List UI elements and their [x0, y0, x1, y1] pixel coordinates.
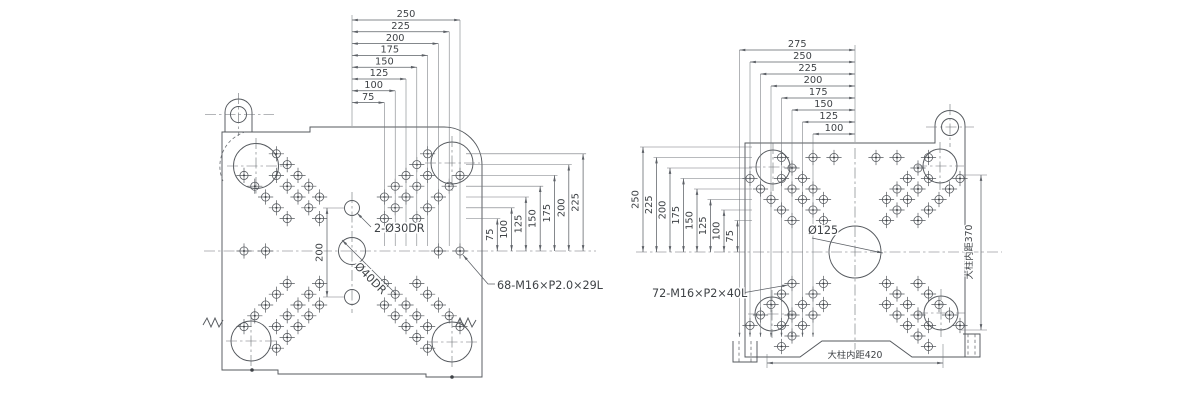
- bolt-hole: [442, 308, 457, 323]
- bolt-hole: [301, 200, 316, 215]
- bolt-hole: [269, 168, 284, 183]
- bolt-hole: [868, 150, 883, 165]
- dimension-value: 250: [631, 190, 642, 209]
- bolt-hole: [269, 287, 284, 302]
- dimension-value: 200: [386, 33, 405, 44]
- bolt-hole: [826, 150, 841, 165]
- bolt-hole: [921, 339, 936, 354]
- guide-pin-hole-label: 2-Ø30DR: [374, 222, 425, 235]
- bolt-hole: [910, 213, 925, 228]
- bolt-hole: [420, 319, 435, 334]
- drain-hole: [250, 368, 254, 372]
- bolt-hole: [879, 297, 894, 312]
- bolt-hole: [236, 243, 251, 258]
- dimension-chain-right-left: 25022520017515012510075: [631, 147, 753, 252]
- dimension-value: 75: [362, 92, 374, 103]
- bolt-hole: [388, 308, 403, 323]
- bolt-hole: [889, 150, 904, 165]
- bolt-hole: [301, 308, 316, 323]
- dimension-value: 275: [788, 39, 807, 50]
- dimension-value: 75: [485, 229, 496, 241]
- bolt-hole: [280, 308, 295, 323]
- tie-bar-distance-horizontal-label: 大柱内距420: [828, 349, 883, 361]
- bolt-hole: [921, 318, 936, 333]
- dimension-value: 150: [685, 211, 696, 230]
- bolt-hole: [931, 297, 946, 312]
- bolt-hole: [409, 276, 424, 291]
- dimension-value: 250: [793, 51, 812, 62]
- bolt-hole: [398, 319, 413, 334]
- bolt-hole: [280, 330, 295, 345]
- bolt-hole: [910, 276, 925, 291]
- dimension-value: 200: [556, 198, 567, 217]
- bolt-hole: [290, 297, 305, 312]
- dimension-value: 225: [644, 195, 655, 214]
- bolt-hole: [312, 297, 327, 312]
- dimension-value: 100: [499, 220, 510, 239]
- bolt-hole: [900, 318, 915, 333]
- dimension-value: 100: [364, 80, 383, 91]
- technical-drawing: 25022520017515012510075 7510012515017520…: [0, 0, 1200, 401]
- bolt-pattern-label: 72-M16×P2×40L: [652, 287, 748, 300]
- leader-line: [357, 213, 371, 227]
- dimension-value: 75: [725, 230, 736, 242]
- dimension-value: 225: [391, 21, 410, 32]
- left-platen-drawing: [203, 93, 596, 379]
- bolt-hole: [409, 330, 424, 345]
- dimension-value: 200: [658, 201, 669, 220]
- bolt-hole: [269, 146, 284, 161]
- tie-bar-distance-vertical-label: 大柱内距370: [963, 224, 975, 279]
- bolt-hole: [290, 189, 305, 204]
- bolt-hole: [889, 286, 904, 301]
- dimension-value: 175: [809, 87, 828, 98]
- dimension-value: 175: [542, 204, 553, 223]
- dimension-value: 150: [814, 99, 833, 110]
- bolt-hole: [942, 307, 957, 322]
- dimension-value: 125: [819, 111, 838, 122]
- bolt-hole: [280, 211, 295, 226]
- hidden-arc: [220, 132, 245, 181]
- dimension-value: 125: [698, 216, 709, 235]
- center-hole-label: Ø125: [808, 224, 838, 237]
- bolt-hole: [301, 179, 316, 194]
- bolt-hole: [290, 168, 305, 183]
- bolt-hole: [431, 297, 446, 312]
- dimension-value: 175: [380, 45, 399, 56]
- bolt-hole: [774, 339, 789, 354]
- bolt-hole: [280, 276, 295, 291]
- bolt-hole: [258, 189, 273, 204]
- bolt-hole: [910, 307, 925, 322]
- dimension-value: 125: [513, 215, 524, 234]
- bolt-hole: [889, 181, 904, 196]
- bolt-hole: [301, 287, 316, 302]
- bolt-hole: [269, 319, 284, 334]
- bolt-hole: [889, 307, 904, 322]
- leader-line: [812, 238, 883, 253]
- dimension-value: 225: [798, 63, 817, 74]
- bolt-hole: [910, 181, 925, 196]
- bolt-hole: [312, 189, 327, 204]
- bolt-hole: [312, 276, 327, 291]
- bolt-hole: [921, 171, 936, 186]
- bolt-hole: [452, 319, 467, 334]
- bolt-hole: [900, 297, 915, 312]
- bolt-hole: [269, 200, 284, 215]
- dimension-value: 250: [397, 9, 416, 20]
- dimension-chain-left-top: 25022520017515012510075: [352, 9, 460, 246]
- bolt-hole: [420, 287, 435, 302]
- leader-line: [742, 285, 788, 293]
- bolt-hole: [258, 243, 273, 258]
- dimension-value: 125: [370, 68, 389, 79]
- dimension-value: 150: [375, 56, 394, 67]
- bolt-hole: [816, 192, 831, 207]
- bolt-hole: [388, 287, 403, 302]
- bolt-hole: [879, 276, 894, 291]
- dimension-value: 175: [671, 206, 682, 225]
- bolt-hole: [816, 297, 831, 312]
- bolt-hole: [409, 308, 424, 323]
- dimension-value: 200: [804, 75, 823, 86]
- bolt-hole: [910, 328, 925, 343]
- bolt-hole: [889, 202, 904, 217]
- dimension-value: 100: [825, 123, 844, 134]
- bolt-hole: [879, 192, 894, 207]
- bolt-hole: [258, 297, 273, 312]
- drain-hole: [450, 375, 454, 379]
- bolt-hole: [290, 319, 305, 334]
- drawing-canvas: 25022520017515012510075 7510012515017520…: [0, 0, 1200, 401]
- bolt-hole: [377, 297, 392, 312]
- dimension-value: 225: [571, 193, 582, 212]
- bolt-hole: [942, 181, 957, 196]
- dimension-chain-left-right: 75100125150175200225: [466, 154, 586, 251]
- bolt-hole: [921, 286, 936, 301]
- bolt-pattern-label: 68-M16×P2.0×29L: [497, 279, 604, 292]
- dimension-value: 200: [315, 243, 326, 262]
- bolt-hole: [280, 157, 295, 172]
- bolt-hole: [816, 276, 831, 291]
- bolt-hole: [921, 202, 936, 217]
- bolt-hole: [247, 179, 262, 194]
- wavy-break-mark: [203, 318, 223, 327]
- bolt-hole: [900, 192, 915, 207]
- mounting-foot: [963, 334, 980, 357]
- bolt-hole: [280, 179, 295, 194]
- bolt-hole: [312, 211, 327, 226]
- dimension-value: 100: [712, 222, 723, 241]
- dimension-value: 150: [528, 209, 539, 228]
- leader-line: [463, 255, 495, 284]
- bolt-hole: [398, 297, 413, 312]
- bolt-hole: [420, 341, 435, 356]
- bolt-hole: [900, 171, 915, 186]
- bolt-hole: [931, 192, 946, 207]
- bolt-hole: [879, 213, 894, 228]
